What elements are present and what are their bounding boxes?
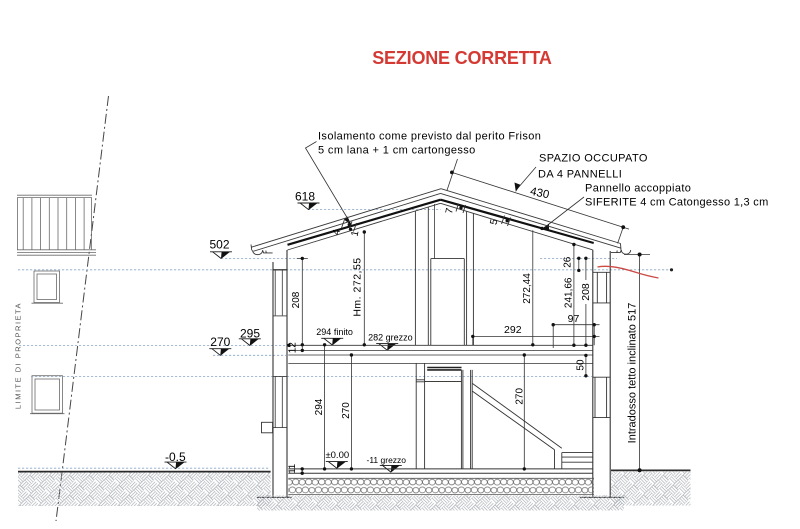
svg-text:5 cm lana + 1 cm cartongesso: 5 cm lana + 1 cm cartongesso — [318, 145, 476, 157]
svg-text:Hm. 272,55: Hm. 272,55 — [351, 257, 363, 316]
svg-text:208: 208 — [580, 283, 592, 301]
svg-text:11: 11 — [287, 464, 298, 474]
svg-text:-11 grezzo: -11 grezzo — [367, 455, 407, 465]
svg-text:Isolamento come previsto dal p: Isolamento come previsto dal perito Fris… — [318, 131, 541, 143]
svg-text:SIFERITE 4 cm Catongesso 1,3 c: SIFERITE 4 cm Catongesso 1,3 cm — [585, 197, 769, 209]
svg-text:272,44: 272,44 — [522, 273, 533, 304]
svg-text:SEZIONE CORRETTA: SEZIONE CORRETTA — [372, 48, 552, 68]
svg-text:LIMITE DI PROPRIETA: LIMITE DI PROPRIETA — [14, 302, 23, 409]
svg-text:241,66: 241,66 — [564, 277, 575, 308]
svg-text:SPAZIO OCCUPATO: SPAZIO OCCUPATO — [539, 153, 648, 165]
svg-text:294: 294 — [314, 398, 325, 415]
svg-text:282 grezzo: 282 grezzo — [368, 332, 413, 342]
svg-text:270: 270 — [210, 335, 230, 349]
svg-text:DA 4 PANNELLI: DA 4 PANNELLI — [538, 169, 622, 181]
svg-text:12: 12 — [288, 342, 299, 354]
svg-text:502: 502 — [209, 238, 229, 252]
svg-text:97: 97 — [568, 313, 580, 325]
svg-text:26: 26 — [562, 256, 573, 268]
svg-text:292: 292 — [504, 324, 522, 336]
svg-text:270: 270 — [515, 388, 526, 405]
svg-text:±0.00: ±0.00 — [325, 450, 349, 461]
svg-text:50: 50 — [575, 359, 586, 371]
svg-text:295: 295 — [240, 326, 260, 340]
svg-text:Pannello accoppiato: Pannello accoppiato — [585, 183, 691, 195]
svg-text:618: 618 — [295, 189, 315, 203]
svg-text:294 finito: 294 finito — [316, 327, 353, 337]
svg-text:Intradosso tetto inclinato 517: Intradosso tetto inclinato 517 — [626, 303, 638, 444]
svg-text:208: 208 — [291, 291, 302, 308]
svg-text:270: 270 — [341, 402, 352, 419]
